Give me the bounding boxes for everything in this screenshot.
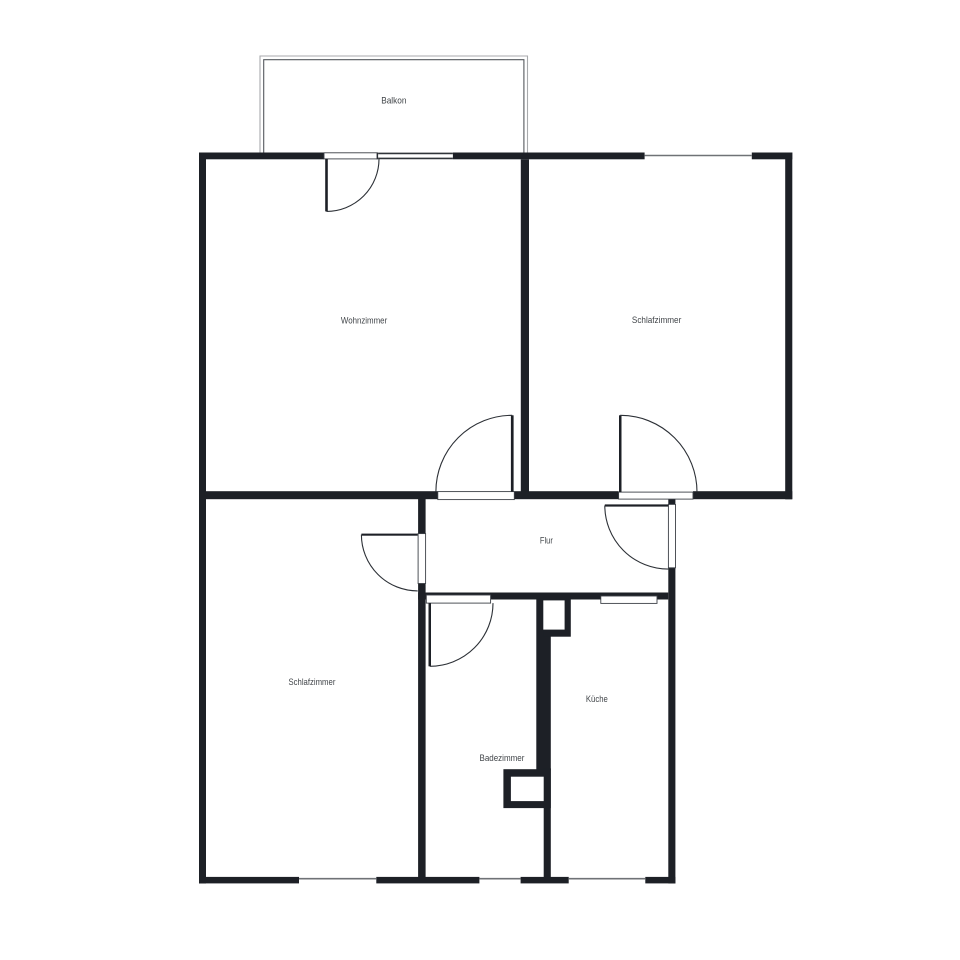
svg-text:Badezimmer: Badezimmer bbox=[480, 753, 525, 764]
svg-text:Schlafzimmer: Schlafzimmer bbox=[632, 315, 681, 326]
svg-text:Balkon: Balkon bbox=[381, 95, 406, 106]
svg-text:Flur: Flur bbox=[540, 535, 553, 546]
svg-text:Wohnzimmer: Wohnzimmer bbox=[341, 316, 387, 327]
svg-text:Küche: Küche bbox=[586, 694, 608, 705]
svg-text:Schlafzimmer: Schlafzimmer bbox=[289, 677, 336, 688]
